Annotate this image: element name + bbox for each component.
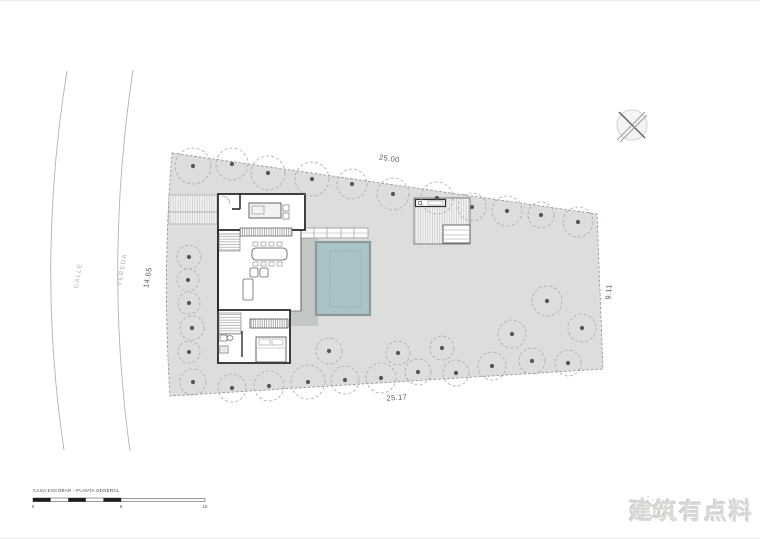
street-label-calle: CALLE	[73, 263, 84, 289]
dimension-top: 25.00	[378, 153, 400, 165]
pavilion-table	[443, 225, 470, 243]
scale-tick-10: 10	[203, 504, 208, 509]
pavilion-counter	[416, 200, 446, 207]
driveway	[169, 195, 218, 224]
dresser	[250, 319, 288, 328]
site-plan-page: 25.00 25.17 14.65 9.11 CALLE VEREDA CASA…	[0, 0, 760, 539]
stair-lower	[219, 313, 241, 334]
scale-tick-5: 5	[120, 504, 123, 509]
drawing-title: CASA ESCOBAR - PLANTA GENERAL	[33, 488, 120, 493]
scale-tick-0: 0	[32, 504, 35, 509]
kitchen-island	[249, 203, 281, 218]
title-block: CASA ESCOBAR - PLANTA GENERAL 0 5 10	[32, 488, 208, 509]
stair-upper	[219, 234, 240, 251]
site-plan-svg: 25.00 25.17 14.65 9.11 CALLE VEREDA CASA…	[0, 1, 760, 538]
bed	[256, 337, 286, 362]
scale-bar: 0 5 10	[32, 498, 208, 509]
bird-sketch-icon	[629, 492, 661, 524]
dimension-bottom: 25.17	[386, 392, 407, 402]
sideboard	[240, 228, 292, 236]
street-labels: CALLE VEREDA	[73, 253, 129, 289]
dimension-right: 9.11	[603, 284, 613, 300]
north-arrow-icon	[617, 110, 647, 142]
watermark: 建筑有点料	[629, 492, 754, 526]
lounger-row	[301, 228, 368, 238]
swimming-pool	[316, 242, 370, 315]
dimension-left: 14.65	[141, 267, 153, 289]
